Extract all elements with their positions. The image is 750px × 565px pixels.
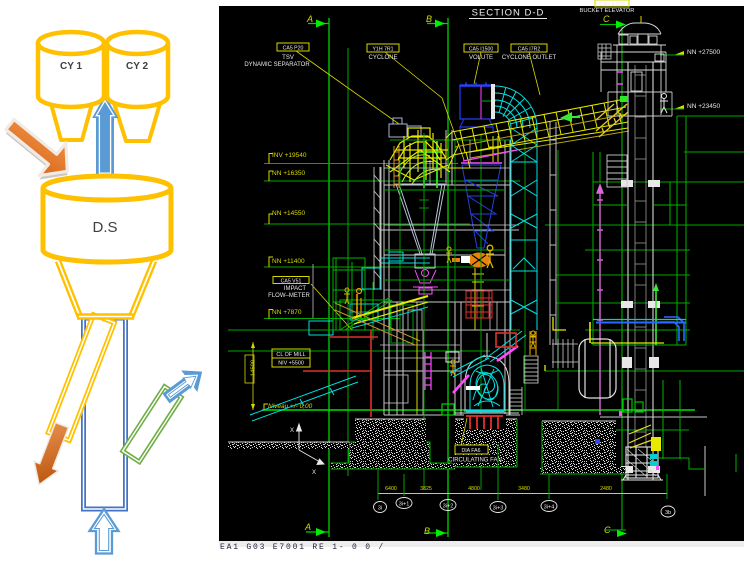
svg-text:CA5 V51: CA5 V51 (281, 279, 302, 285)
svg-text:CY 1: CY 1 (60, 61, 82, 72)
svg-text:INV +19540: INV +19540 (272, 152, 307, 159)
svg-text:C: C (603, 14, 610, 24)
svg-text:CYCLONE: CYCLONE (368, 55, 397, 61)
svg-text:NN +7870: NN +7870 (272, 309, 302, 316)
svg-text:CA5 I7R2: CA5 I7R2 (518, 47, 541, 53)
svg-text:CY 2: CY 2 (126, 61, 148, 72)
svg-text:A: A (306, 14, 313, 24)
svg-text:CA5 E100: CA5 E100 (599, 2, 624, 8)
svg-text:D.S: D.S (92, 219, 117, 236)
svg-text:3i: 3i (378, 506, 382, 512)
svg-text:NN +11400: NN +11400 (272, 258, 305, 265)
svg-text:DIA FA6: DIA FA6 (461, 448, 480, 454)
svg-text:BUCKET ELEVATOR: BUCKET ELEVATOR (580, 8, 635, 14)
svg-text:3i+2: 3i+2 (443, 504, 454, 510)
svg-text:X: X (312, 470, 316, 476)
svg-text:FLOW–METER: FLOW–METER (268, 293, 310, 299)
svg-text:A: A (304, 522, 311, 532)
svg-text:EA1 G03 E7001 RE 1- 0 0 /: EA1 G03 E7001 RE 1- 0 0 / (220, 543, 385, 552)
svg-text:Y1H 7R1: Y1H 7R1 (372, 47, 393, 53)
svg-text:IMPACT: IMPACT (284, 286, 307, 292)
svg-text:2480: 2480 (600, 486, 612, 492)
svg-text:3480: 3480 (518, 486, 530, 492)
svg-text:CA5 P20: CA5 P20 (283, 46, 304, 52)
svg-text:NN +16350: NN +16350 (272, 170, 305, 177)
svg-text:CYCLONE OUTLET: CYCLONE OUTLET (502, 55, 557, 61)
svg-text:3i+1: 3i+1 (399, 502, 410, 508)
svg-text:TSV: TSV (282, 55, 294, 61)
svg-text:6400: 6400 (385, 486, 397, 492)
svg-text:3i+3: 3i+3 (493, 506, 504, 512)
svg-text:CL OF MILL: CL OF MILL (276, 352, 305, 358)
svg-text:NN +23450: NN +23450 (687, 103, 720, 110)
svg-text:X: X (290, 428, 294, 434)
svg-text:B: B (426, 14, 432, 24)
svg-text:CA5 I1500: CA5 I1500 (469, 47, 494, 53)
svg-text:B: B (424, 526, 430, 536)
svg-text:3b: 3b (665, 510, 671, 516)
svg-text:NIV +5500: NIV +5500 (278, 361, 304, 367)
svg-text:CIRCULATING FAN: CIRCULATING FAN (448, 458, 502, 464)
svg-text:VOLUTE: VOLUTE (469, 55, 493, 61)
svg-text:3i+4: 3i+4 (544, 505, 555, 511)
svg-text:4800: 4800 (468, 486, 480, 492)
svg-text:NN +14550: NN +14550 (272, 210, 305, 217)
svg-text:DYNAMIC SEPARATOR: DYNAMIC SEPARATOR (244, 62, 310, 68)
svg-text:NN +27500: NN +27500 (687, 49, 720, 56)
svg-text:C: C (604, 525, 611, 535)
svg-text:3825: 3825 (420, 486, 432, 492)
svg-text:14500: 14500 (251, 360, 257, 376)
svg-text:SECTION D-D: SECTION D-D (472, 8, 545, 19)
